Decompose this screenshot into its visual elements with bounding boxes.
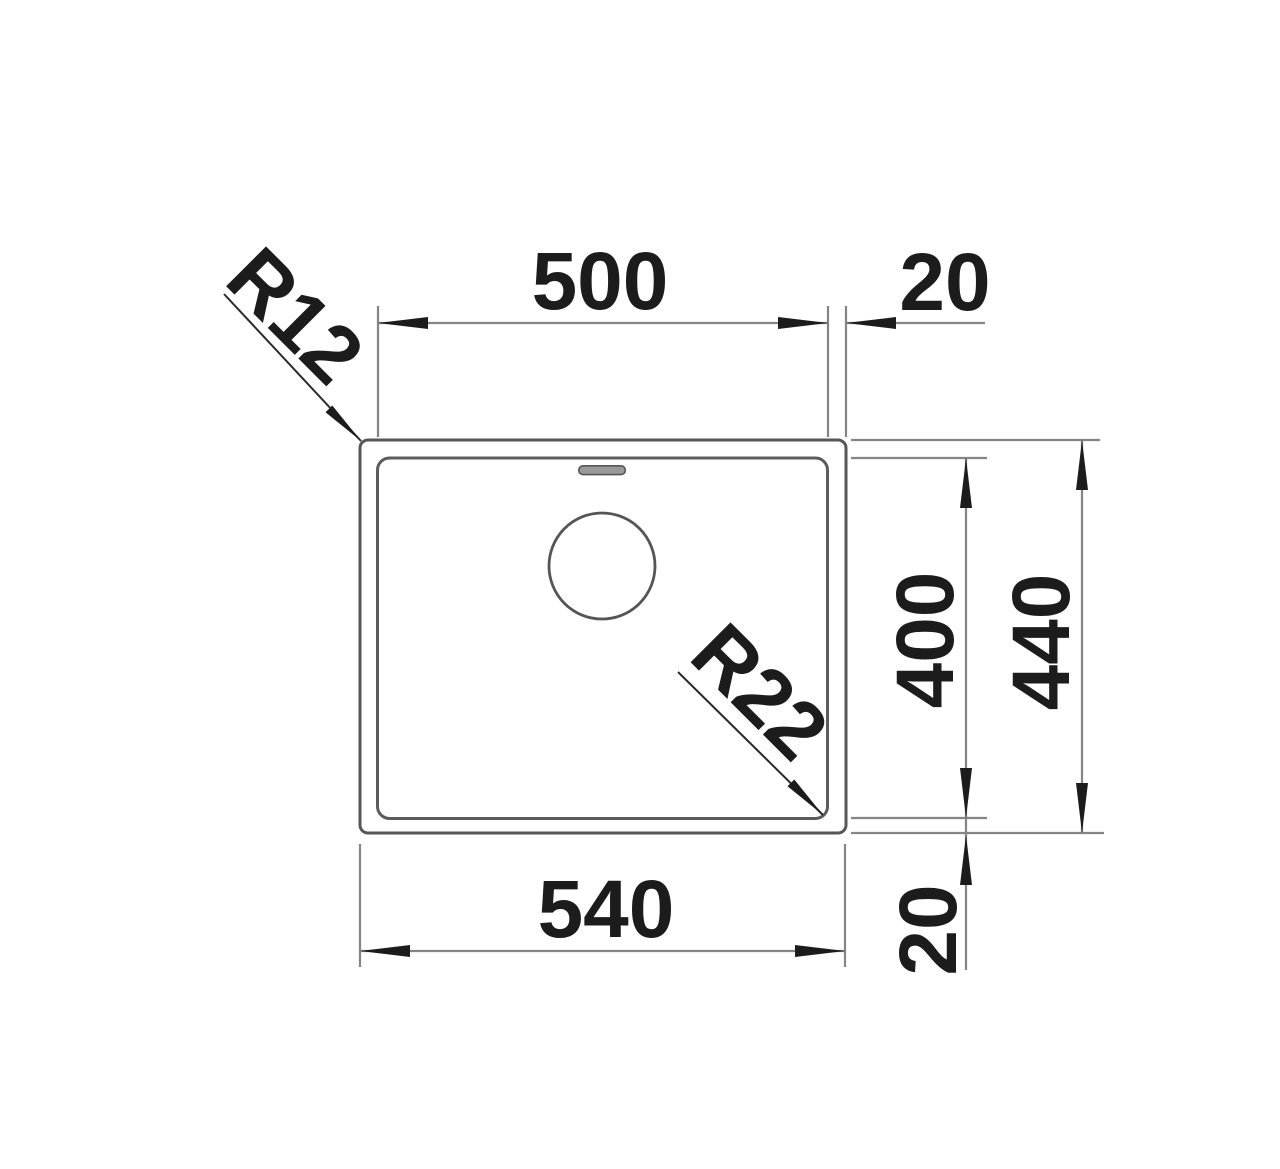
svg-text:20: 20	[883, 884, 974, 975]
svg-text:400: 400	[880, 572, 971, 709]
svg-text:500: 500	[532, 236, 669, 327]
svg-text:440: 440	[996, 574, 1087, 711]
svg-text:540: 540	[538, 864, 675, 955]
svg-text:20: 20	[899, 237, 990, 328]
